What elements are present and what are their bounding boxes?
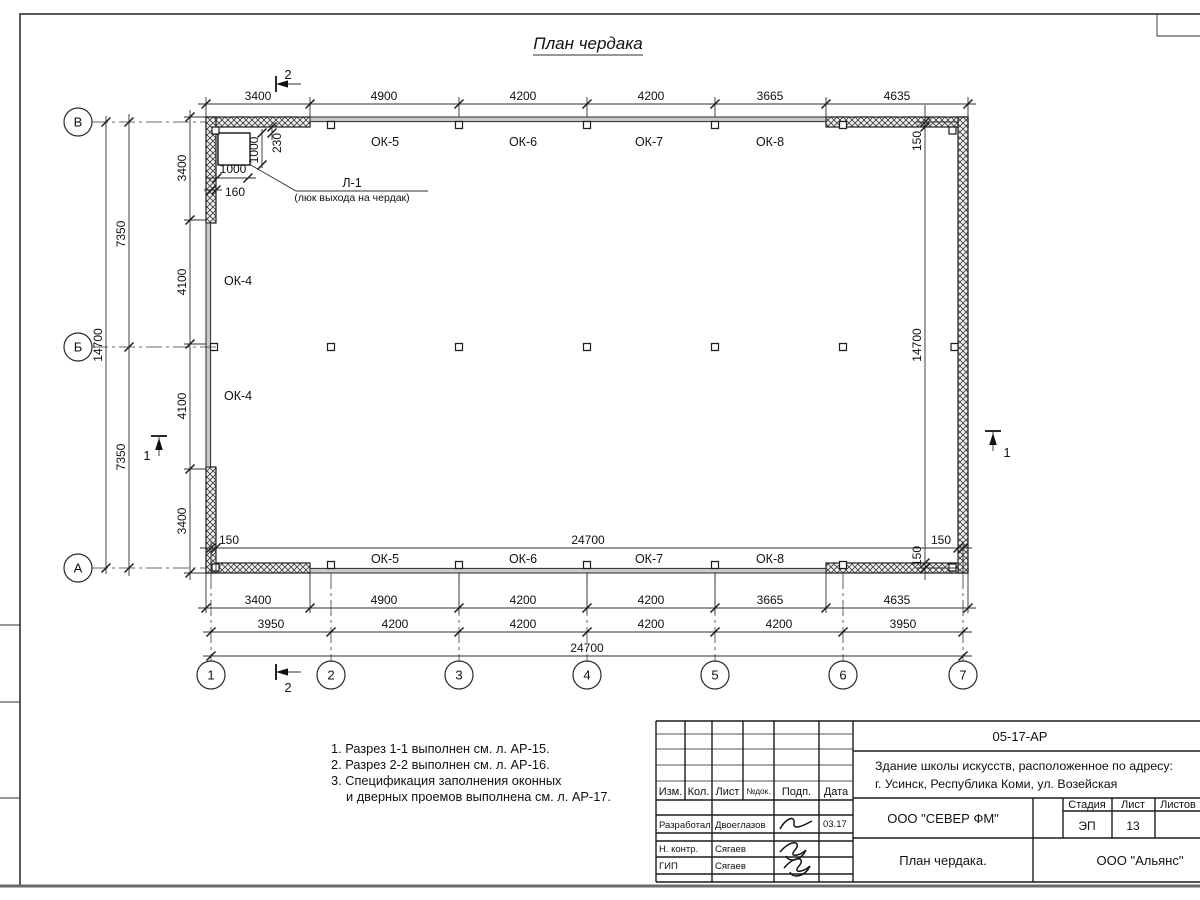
- tb-col-header: Кол.: [688, 786, 710, 798]
- dim-bottom2: 4200: [766, 617, 793, 631]
- axis-label-col: 2: [327, 668, 334, 683]
- section-label: 1: [143, 448, 150, 463]
- signature: [780, 818, 812, 829]
- tb-stage-value: ЭП: [1078, 819, 1095, 833]
- dim-bottom2: 4200: [638, 617, 665, 631]
- columns: [211, 122, 959, 572]
- dim-bottom2: 4200: [382, 617, 409, 631]
- title-block: Изм. Кол. Лист №док. Подп. Дата Разработ…: [656, 721, 1200, 882]
- drawing-sheet: План чердака В Б А: [0, 0, 1200, 900]
- window-label-top: ОК-8: [756, 135, 784, 149]
- dim-right: 150: [910, 131, 924, 151]
- tb-project-line2: г. Усинск, Республика Коми, ул. Возейска…: [875, 777, 1117, 791]
- dim-left: 3400: [175, 154, 189, 181]
- axis-label-col: 5: [711, 668, 718, 683]
- note-line: 3. Спецификация заполнения оконных: [331, 773, 562, 788]
- dim-top: 4200: [510, 89, 537, 103]
- dim-inner-150-left: 150: [219, 533, 239, 547]
- window-band-bottom: [310, 568, 826, 573]
- dimension-ticks: [102, 100, 973, 661]
- tb-sheet-label: Лист: [1121, 799, 1145, 811]
- notes: 1. Разрез 1-1 выполнен см. л. АР-15. 2. …: [331, 741, 611, 804]
- dim-bottom1: 3665: [757, 593, 784, 607]
- tb-row-role: Н. контр.: [659, 844, 698, 855]
- axis-lines-horizontal: [92, 122, 217, 568]
- window-label-top: ОК-5: [371, 135, 399, 149]
- dim-bottom-total: 24700: [570, 641, 604, 655]
- window-label-left: ОК-4: [224, 389, 252, 403]
- tb-stage-label: Стадия: [1068, 799, 1106, 811]
- dim-inner-width: 24700: [571, 533, 605, 547]
- tb-row-name: Сягаев: [715, 861, 746, 872]
- dim-left-total: 14700: [91, 328, 105, 362]
- tb-project-line1: Здание школы искусств, расположенное по …: [875, 759, 1173, 773]
- axis-label-col: 7: [959, 668, 966, 683]
- luk-label: Л-1: [342, 176, 361, 190]
- window-label-bottom: ОК-7: [635, 552, 663, 566]
- section-label: 2: [284, 67, 291, 82]
- tb-row-name: Двоеглазов: [715, 820, 766, 831]
- window-label-bottom: ОК-8: [756, 552, 784, 566]
- wall-right: [958, 117, 968, 573]
- page-title: План чердака: [533, 34, 642, 53]
- dim-right: 150: [910, 546, 924, 566]
- axis-label-row: В: [74, 115, 83, 130]
- note-line: 2. Разрез 2-2 выполнен см. л. АР-16.: [331, 757, 550, 772]
- tb-company: ООО "СЕВЕР ФМ": [887, 811, 999, 826]
- note-line: 1. Разрез 1-1 выполнен см. л. АР-15.: [331, 741, 550, 756]
- luk-dim-v: 1000: [247, 136, 261, 163]
- dim-top: 3665: [757, 89, 784, 103]
- column-markers-top-wall: [328, 122, 847, 129]
- dim-left-mid: 7350: [114, 443, 128, 470]
- window-label-bottom: ОК-6: [509, 552, 537, 566]
- tb-col-header: Изм.: [659, 786, 683, 798]
- dim-bottom1: 4200: [510, 593, 537, 607]
- dim-top: 3400: [245, 89, 272, 103]
- dim-top: 4635: [884, 89, 911, 103]
- dim-top: 4200: [638, 89, 665, 103]
- section-marker-1-right: 1: [985, 431, 1011, 460]
- wall-bottom-left: [206, 563, 310, 573]
- axis-label-row: Б: [74, 340, 83, 355]
- tb-org: ООО "Альянс": [1097, 853, 1184, 868]
- dim-left: 4100: [175, 268, 189, 295]
- section-arrow: [276, 668, 288, 675]
- window-band-top: [310, 117, 826, 122]
- tb-row-name: Сягаев: [715, 844, 746, 855]
- tb-col-header: Лист: [716, 786, 740, 798]
- tb-doc-code: 05-17-АР: [993, 729, 1048, 744]
- tb-row-role: ГИП: [659, 861, 678, 872]
- luk-dim-h: 1000: [220, 162, 247, 176]
- dim-right: 14700: [910, 328, 924, 362]
- tb-sheets-label: Листов: [1160, 799, 1196, 811]
- tb-col-header: Подп.: [782, 786, 811, 798]
- dim-bottom1: 4635: [884, 593, 911, 607]
- section-marker-2-bottom: 2: [276, 664, 301, 695]
- window-label-bottom: ОК-5: [371, 552, 399, 566]
- axis-label-col: 6: [839, 668, 846, 683]
- tb-col-header: Дата: [824, 786, 849, 798]
- dim-bottom1: 4200: [638, 593, 665, 607]
- axis-label-row: А: [74, 561, 83, 576]
- column-markers-middle-row: [211, 344, 959, 351]
- section-arrow: [155, 438, 163, 450]
- dim-bottom2: 3950: [890, 617, 917, 631]
- luk-dim-offset-v: 230: [270, 133, 284, 153]
- axis-label-col: 3: [455, 668, 462, 683]
- dim-left: 4100: [175, 392, 189, 419]
- window-label-top: ОК-7: [635, 135, 663, 149]
- section-marker-2-top: 2: [276, 67, 301, 92]
- tb-row-date: 03.17: [823, 819, 847, 830]
- section-label: 2: [284, 680, 291, 695]
- plan-title: План чердака: [533, 34, 643, 55]
- dim-left: 3400: [175, 507, 189, 534]
- dim-bottom1: 3400: [245, 593, 272, 607]
- dim-bottom2: 4200: [510, 617, 537, 631]
- dim-inner-150-right: 150: [931, 533, 951, 547]
- axis-label-col: 4: [583, 668, 590, 683]
- section-arrow: [989, 433, 997, 445]
- section-markers: 2 2 1 1: [143, 67, 1010, 695]
- dim-bottom2: 3950: [258, 617, 285, 631]
- dim-bottom1: 4900: [371, 593, 398, 607]
- section-label: 1: [1003, 445, 1010, 460]
- frame-margin-ticks: [0, 625, 20, 798]
- axis-label-col: 1: [207, 668, 214, 683]
- luk-dim-offset-h: 160: [225, 185, 245, 199]
- luk-description: (люк выхода на чердак): [294, 192, 409, 204]
- frame-corner-box: [1157, 14, 1200, 36]
- tb-sheet-value: 13: [1126, 819, 1140, 833]
- tb-drawing-title: План чердака.: [899, 853, 987, 868]
- sheet-frame: [0, 14, 1200, 886]
- dim-top: 4900: [371, 89, 398, 103]
- dim-left-mid: 7350: [114, 220, 128, 247]
- wall-top-left: [206, 117, 310, 127]
- note-line: и дверных проемов выполнена см. л. АР-17…: [346, 789, 611, 804]
- window-label-left: ОК-4: [224, 274, 252, 288]
- section-marker-1-left: 1: [143, 436, 167, 463]
- tb-col-header: №док.: [747, 787, 771, 796]
- window-label-top: ОК-6: [509, 135, 537, 149]
- attic-plan-drawing: План чердака В Б А: [0, 0, 1200, 900]
- tb-row-role: Разработал: [659, 820, 711, 831]
- attic-hatch-opening: [218, 133, 250, 165]
